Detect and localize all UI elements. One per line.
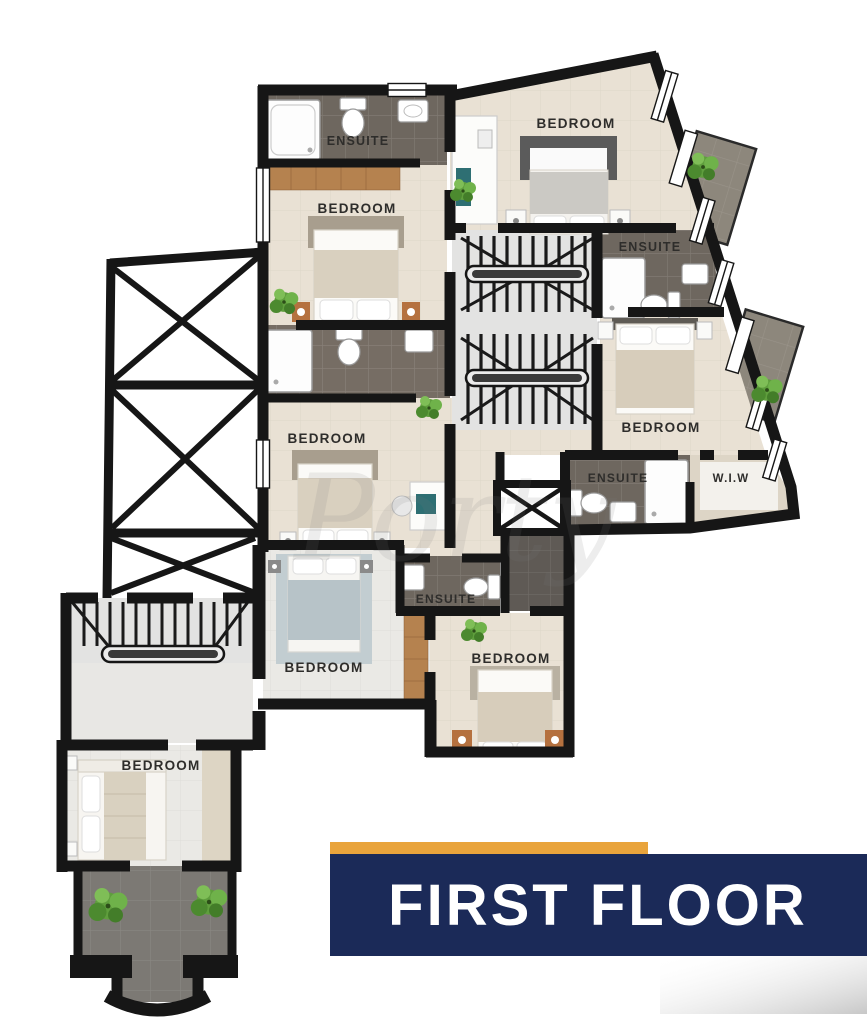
window xyxy=(257,168,270,242)
room-label-ensuite-top-left: ENSUITE xyxy=(327,134,390,148)
sink-icon xyxy=(405,330,433,352)
room-label-bedroom-top-left: BEDROOM xyxy=(318,201,397,216)
room-label-bedroom-bottom-center: BEDROOM xyxy=(285,660,364,675)
terrace-notch-left xyxy=(70,955,132,978)
terrace-floor xyxy=(78,866,232,1002)
landing-floor xyxy=(68,663,253,743)
shower xyxy=(266,100,320,160)
room-label-bedroom-mid-right: BEDROOM xyxy=(622,420,701,435)
room-label-bedroom-bottom-left: BEDROOM xyxy=(122,758,201,773)
title-banner: FIRST FLOOR xyxy=(330,842,867,1014)
shower xyxy=(266,330,312,392)
room-label-bedroom-mid-left: BEDROOM xyxy=(288,431,367,446)
floor-title: FIRST FLOOR xyxy=(388,873,808,938)
room-label-bedroom-bottom-right: BEDROOM xyxy=(472,651,551,666)
banner-orange-bar xyxy=(330,842,648,854)
shower xyxy=(645,460,688,524)
wood-strip-top-left xyxy=(266,167,400,190)
toilet-icon xyxy=(336,328,362,365)
room-label-ensuite-bottom-center: ENSUITE xyxy=(416,592,476,606)
terrace-notch-right xyxy=(183,955,238,978)
sink-icon xyxy=(398,100,428,122)
void-x-braces xyxy=(111,257,258,593)
sink-icon xyxy=(682,264,708,284)
first-floor-plan: Porty ENSUITE BEDROOM BEDROOM ENSUITE BE… xyxy=(0,0,867,1024)
toilet-icon xyxy=(340,98,366,137)
floor-plan-canvas: Porty ENSUITE BEDROOM BEDROOM ENSUITE BE… xyxy=(0,0,867,1024)
desk xyxy=(452,116,497,224)
room-label-ensuite-top-right: ENSUITE xyxy=(619,240,682,254)
room-label-bedroom-top-right: BEDROOM xyxy=(537,116,616,131)
wardrobe-strip xyxy=(202,750,232,864)
room-label-ensuite-mid-right: ENSUITE xyxy=(588,471,648,485)
banner-shadow xyxy=(660,956,867,1014)
room-label-wiw: W.I.W xyxy=(713,473,750,485)
window xyxy=(388,84,426,97)
window xyxy=(257,440,270,488)
watermark: Porty xyxy=(292,450,618,589)
